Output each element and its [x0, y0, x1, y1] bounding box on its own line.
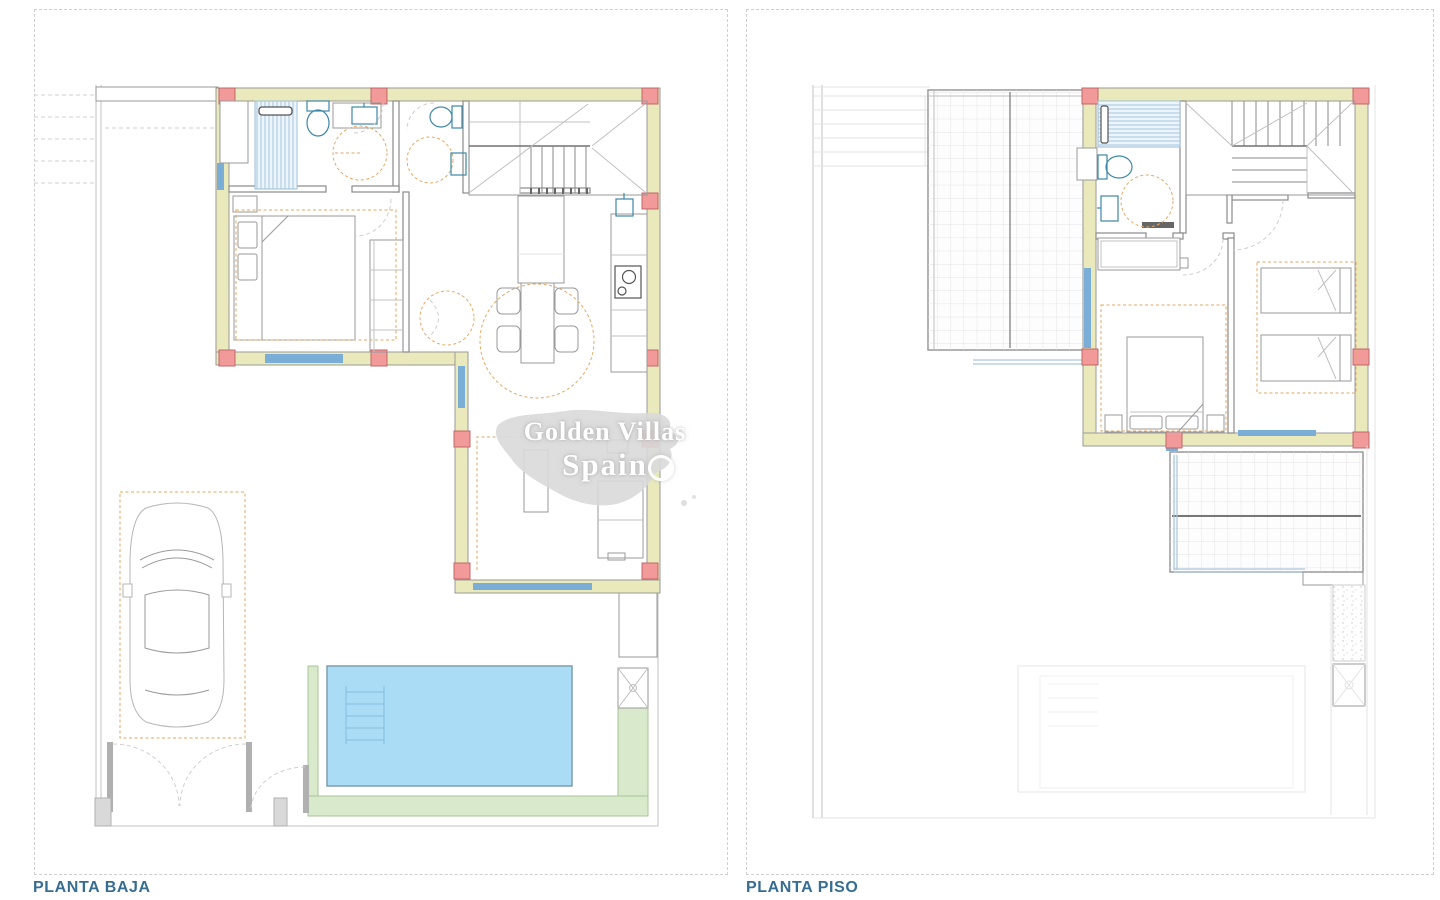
toilet: [307, 101, 329, 136]
nightstand: [1105, 415, 1122, 432]
toilet: [430, 106, 462, 128]
toilet: [1098, 155, 1132, 179]
terrace-step: [1303, 572, 1363, 585]
porch-pillar: [619, 593, 657, 657]
wardrobe: [1098, 238, 1188, 270]
boundary-wall: [95, 798, 111, 826]
column: [1353, 349, 1369, 365]
upper-floor-label: PLANTA PISO: [746, 879, 858, 897]
staircase: [469, 101, 647, 195]
bedroom: [233, 196, 403, 352]
pool-outline-below: [1018, 666, 1305, 792]
shower-screen: [1101, 106, 1108, 143]
dining-area: [420, 196, 594, 398]
swimming-pool: [327, 666, 572, 786]
column: [1082, 88, 1098, 104]
window-sill: [1077, 148, 1097, 180]
towel-rail: [259, 107, 292, 115]
wardrobe: [370, 240, 403, 352]
column: [1353, 432, 1369, 448]
bedroom-2: [1257, 262, 1356, 393]
front-fence: [96, 87, 218, 101]
ground-floor-label: PLANTA BAJA: [33, 879, 151, 897]
column: [1082, 349, 1098, 365]
entrance-gates: [95, 742, 309, 826]
staircase: [1186, 101, 1355, 195]
bathroom-1: [255, 101, 387, 189]
gate-post: [246, 742, 252, 812]
kitchen-island: [518, 196, 564, 283]
double-bed: [234, 216, 355, 340]
ground-floor-plan: [34, 85, 660, 826]
garden-strip: [618, 708, 648, 796]
sink: [1097, 196, 1118, 221]
bathroom: [1097, 101, 1180, 227]
kitchen: [611, 193, 647, 372]
entry-closet: [220, 101, 248, 163]
windows: [1077, 148, 1316, 451]
boundary-wall: [274, 798, 287, 826]
pool-terrace: [308, 593, 657, 816]
single-bed: [1261, 268, 1351, 313]
column: [454, 431, 470, 447]
outdoor-shower: [618, 668, 648, 708]
bedroom-1: [1098, 238, 1226, 432]
upper-floor-plan: [813, 85, 1375, 818]
cooktop: [615, 266, 641, 298]
single-bed: [1261, 335, 1351, 381]
gravel-planter: [1333, 585, 1365, 661]
shaft: [1333, 664, 1365, 706]
column: [642, 88, 658, 104]
sofa: [598, 440, 643, 560]
terrace: [1170, 446, 1367, 815]
garden-strip: [308, 796, 648, 816]
coffee-table: [524, 450, 548, 512]
garden-strip: [308, 666, 318, 816]
living-room: [477, 437, 643, 570]
dining-table: [521, 283, 554, 363]
column: [642, 431, 658, 447]
bathroom-2: [407, 103, 466, 183]
roof-terrace: [928, 90, 1086, 364]
column: [1166, 432, 1182, 448]
parking: [120, 492, 245, 738]
column: [454, 563, 470, 579]
floor-plans-drawing: [0, 0, 1440, 900]
column: [642, 563, 658, 579]
kitchen-sink: [616, 193, 633, 216]
gate-post: [303, 765, 309, 813]
car: [123, 503, 231, 727]
nightstand: [1207, 415, 1224, 432]
double-bed: [1127, 337, 1203, 432]
column: [371, 88, 387, 104]
column: [219, 350, 235, 366]
